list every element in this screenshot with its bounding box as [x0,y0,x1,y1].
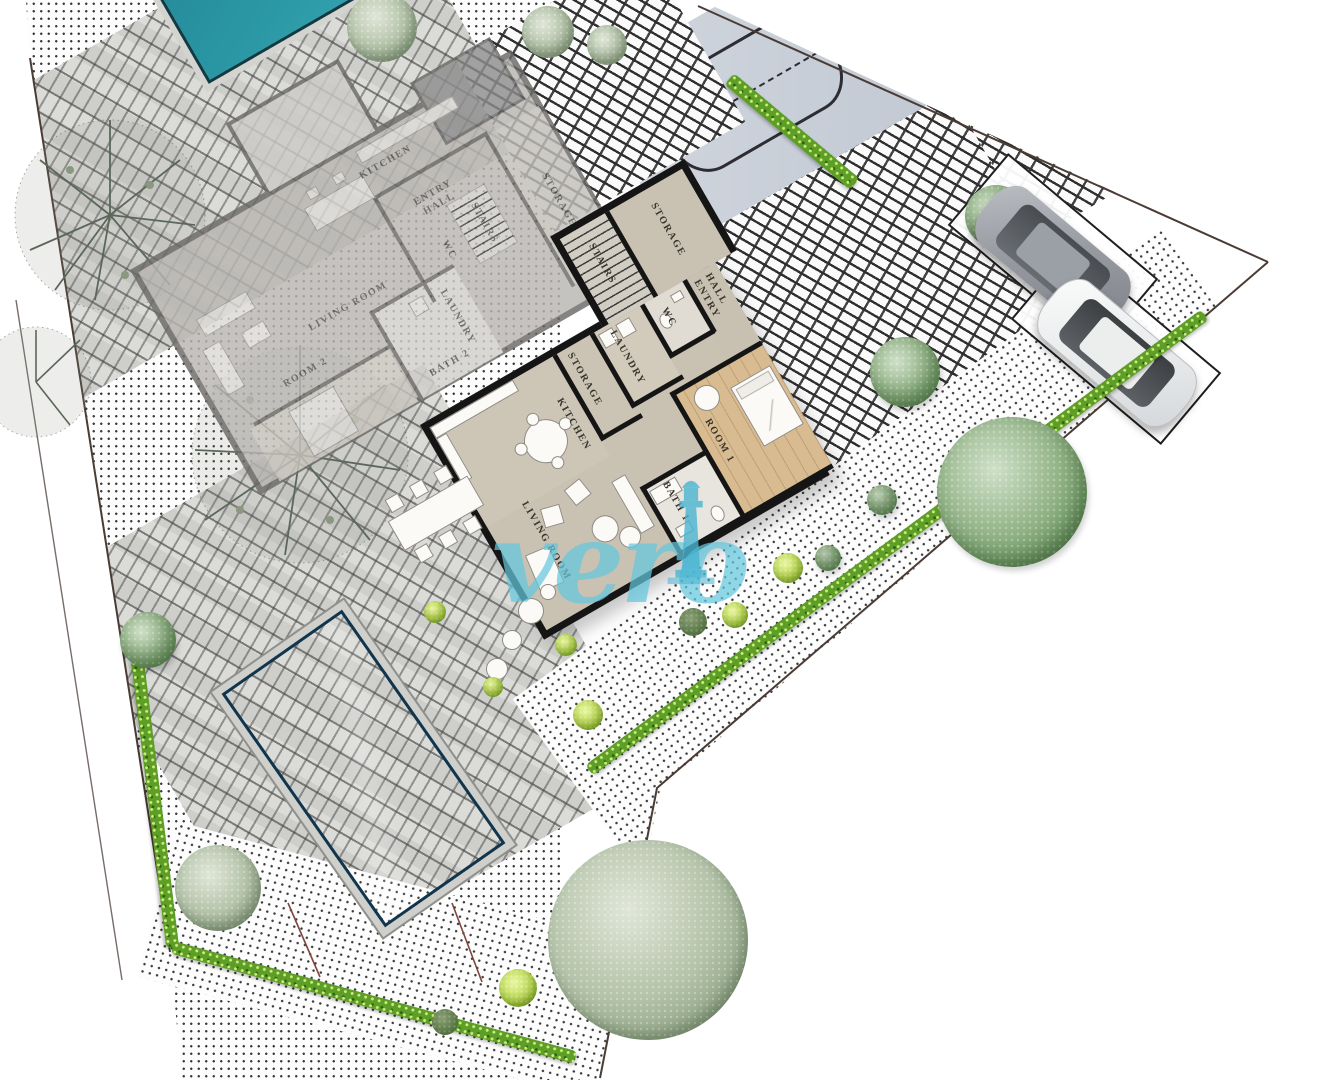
tree-icon [937,417,1087,567]
bush-icon [432,1009,458,1035]
chair [438,529,458,549]
chair [331,171,346,186]
chair [409,479,429,499]
tree-icon [548,840,748,1040]
chair [385,493,405,513]
coffee-table [240,320,272,349]
chair [462,515,482,535]
bush-icon [120,612,176,668]
bush-icon [499,969,537,1007]
bush-icon [573,700,603,730]
room-label-storage: STORAGE [648,201,689,259]
bush-icon [773,553,803,583]
bush-icon [483,677,503,697]
bush-icon [587,25,627,65]
blanket-line [748,393,796,436]
chair [305,186,320,201]
outdoor-table [388,476,485,551]
room-label-wc: WC [438,238,459,262]
chair [433,465,453,485]
sofa [202,341,245,396]
bush-icon [867,485,897,515]
outdoor-stool [502,630,522,650]
bare-tree-icon [0,327,91,437]
lighthouse-icon [664,458,718,588]
bush-icon [522,6,574,58]
bush-icon [175,845,261,931]
bush-icon [815,545,841,571]
chair [414,543,434,563]
bush-icon [424,601,446,623]
utility-line [288,903,482,982]
bush-icon [555,634,577,656]
bush-icon [870,337,940,407]
site-plan-canvas: KITCHEN ENTRY HALL WC STAIRS STORAGE LIV… [0,0,1342,1080]
